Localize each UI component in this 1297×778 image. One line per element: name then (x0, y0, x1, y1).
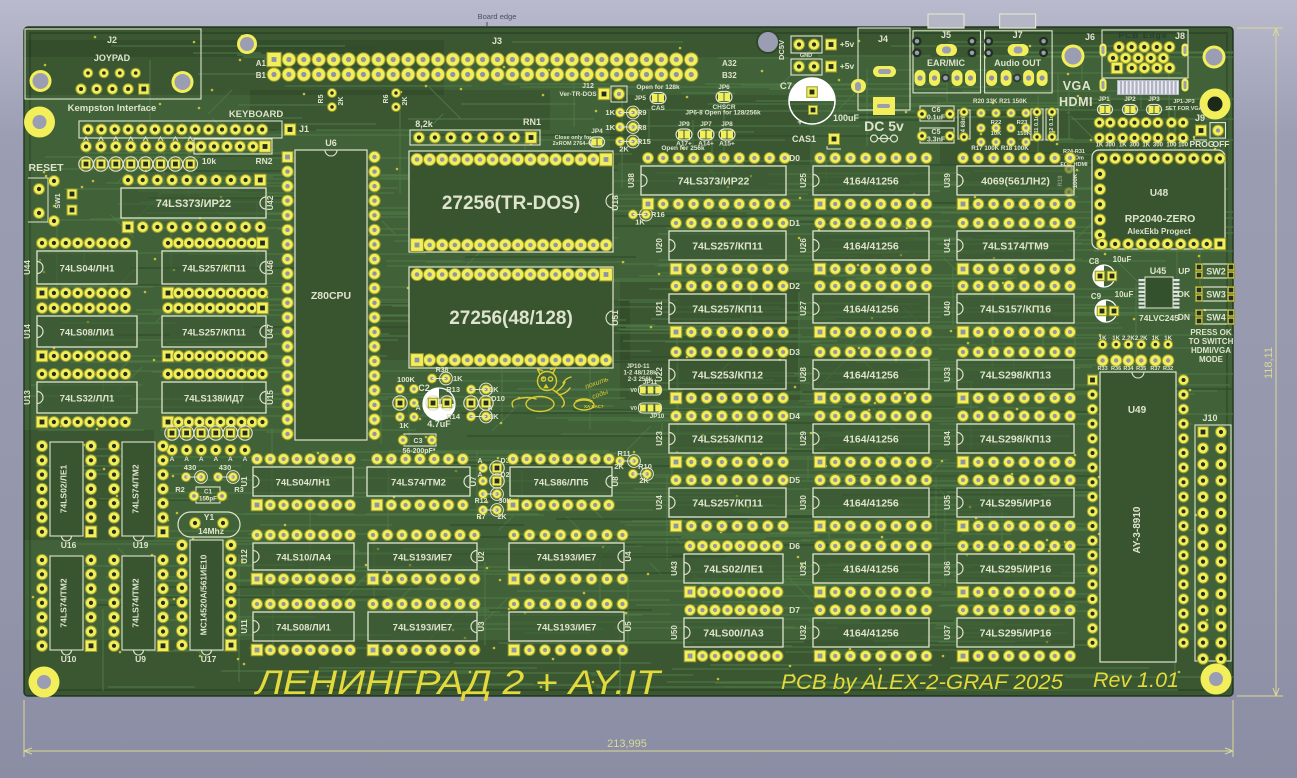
svg-text:+5v: +5v (840, 61, 855, 71)
svg-text:74LS373/ИР22: 74LS373/ИР22 (678, 176, 750, 188)
svg-text:4164/41256: 4164/41256 (843, 241, 899, 253)
svg-text:74LS08/ЛИ1: 74LS08/ЛИ1 (60, 328, 115, 339)
svg-text:74LS74/ТМ2: 74LS74/ТМ2 (131, 464, 141, 513)
svg-text:2K: 2K (614, 462, 624, 471)
svg-text:74LS193/ИЕ7: 74LS193/ИЕ7 (393, 553, 453, 564)
svg-text:U6: U6 (325, 138, 337, 148)
svg-text:C7: C7 (780, 81, 792, 92)
svg-text:DC5V: DC5V (777, 40, 786, 60)
svg-text:R16: R16 (651, 210, 665, 219)
svg-text:J10: J10 (1202, 413, 1217, 423)
svg-text:R33: R33 (1098, 366, 1108, 372)
svg-text:PROG: PROG (1189, 139, 1214, 149)
svg-text:4164/41256: 4164/41256 (843, 304, 899, 316)
svg-text:10uF: 10uF (1113, 255, 1132, 264)
svg-text:118,11: 118,11 (1263, 347, 1275, 379)
svg-text:74LS295/ИР16: 74LS295/ИР16 (980, 628, 1052, 640)
svg-text:SET FOR VGA: SET FOR VGA (1165, 106, 1202, 112)
svg-text:R23: R23 (1017, 120, 1028, 126)
svg-text:74LS32/ЛЛ1: 74LS32/ЛЛ1 (60, 394, 115, 405)
svg-text:2K: 2K (402, 97, 409, 106)
svg-text:UP: UP (1178, 266, 1190, 276)
svg-text:74LS373/ИР22: 74LS373/ИР22 (156, 198, 231, 210)
svg-text:1K: 1K (1119, 143, 1127, 149)
svg-text:C3: C3 (414, 438, 423, 445)
svg-text:74LVC245: 74LVC245 (1139, 313, 1179, 323)
svg-text:74LS257/КП11: 74LS257/КП11 (182, 264, 247, 275)
svg-text:0.1uF: 0.1uF (927, 115, 946, 122)
svg-text:1K: 1K (399, 421, 409, 430)
svg-text:U8: U8 (611, 476, 620, 487)
svg-text:U42: U42 (266, 195, 275, 210)
svg-text:74LS138/ИД7: 74LS138/ИД7 (184, 394, 244, 405)
svg-text:J6: J6 (1085, 32, 1095, 42)
svg-text:4164/41256: 4164/41256 (843, 434, 899, 446)
svg-text:U38: U38 (627, 173, 636, 188)
svg-text:JP6-8 Open for 128/256k: JP6-8 Open for 128/256k (685, 110, 761, 117)
svg-text:R36: R36 (1111, 366, 1121, 372)
svg-text:U37: U37 (943, 625, 952, 640)
svg-text:JP7: JP7 (700, 121, 712, 128)
svg-text:300: 300 (1105, 143, 1116, 149)
svg-text:D5: D5 (789, 475, 800, 485)
svg-text:EAR/MIC: EAR/MIC (927, 58, 966, 68)
svg-text:27256(TR-DOS): 27256(TR-DOS) (442, 193, 580, 214)
svg-text:B32: B32 (722, 71, 737, 80)
svg-text:150pF: 150pF (199, 496, 217, 503)
svg-text:U9: U9 (135, 654, 146, 664)
svg-text:300: 300 (1129, 143, 1140, 149)
svg-text:R6: R6 (383, 94, 390, 103)
svg-text:U21: U21 (655, 301, 664, 316)
svg-text:ХА ВАС?: ХА ВАС? (584, 404, 604, 409)
svg-text:J3: J3 (492, 36, 502, 46)
svg-text:300: 300 (1153, 143, 1164, 149)
svg-text:SW4: SW4 (1206, 313, 1226, 323)
svg-text:CAS1: CAS1 (792, 134, 816, 144)
svg-text:Kempston Interface: Kempston Interface (68, 103, 157, 114)
svg-text:14Mhz: 14Mhz (198, 526, 224, 536)
svg-text:74LS257/КП11: 74LS257/КП11 (182, 328, 247, 339)
svg-text:MODE: MODE (1199, 355, 1224, 364)
svg-text:U5: U5 (624, 621, 633, 632)
svg-text:TO SWITCH: TO SWITCH (1189, 337, 1234, 346)
svg-text:C1: C1 (204, 489, 212, 496)
svg-text:U29: U29 (799, 431, 808, 446)
svg-text:A: A (415, 405, 420, 412)
svg-text:74LS193/ИЕ7: 74LS193/ИЕ7 (393, 623, 453, 634)
svg-text:B1: B1 (256, 71, 267, 80)
svg-text:HDMI: HDMI (1059, 95, 1093, 109)
svg-text:Rev 1.01: Rev 1.01 (1093, 669, 1179, 692)
svg-text:U14: U14 (23, 324, 32, 339)
svg-text:27256(48/128): 27256(48/128) (449, 308, 573, 329)
svg-text:U35: U35 (943, 495, 952, 510)
svg-text:JP4: JP4 (591, 128, 603, 135)
svg-text:Open for 128k: Open for 128k (636, 84, 680, 91)
svg-text:JP10: JP10 (650, 413, 665, 420)
svg-text:R14: R14 (446, 412, 461, 421)
svg-text:2K: 2K (619, 145, 629, 154)
svg-text:8,2k: 8,2k (415, 119, 434, 129)
svg-text:74LS295/ИР16: 74LS295/ИР16 (980, 564, 1052, 576)
svg-text:U46: U46 (266, 260, 275, 275)
svg-text:A: A (199, 456, 204, 463)
svg-text:R37: R37 (1150, 366, 1160, 372)
svg-text:R15: R15 (637, 137, 651, 146)
svg-text:J1: J1 (299, 124, 309, 134)
svg-text:U17: U17 (201, 654, 217, 664)
svg-text:U34: U34 (943, 431, 952, 446)
svg-text:74LS257/КП11: 74LS257/КП11 (692, 241, 763, 253)
svg-text:74LS157/КП16: 74LS157/КП16 (980, 304, 1051, 316)
svg-text:430: 430 (184, 463, 197, 472)
svg-text:JP1: JP1 (1098, 96, 1110, 103)
svg-text:U50: U50 (670, 625, 679, 640)
svg-text:3.3nF: 3.3nF (927, 137, 946, 144)
svg-text:U15: U15 (266, 390, 275, 405)
svg-text:U44: U44 (23, 260, 32, 275)
svg-text:74LS86/ЛП5: 74LS86/ЛП5 (534, 478, 589, 489)
svg-text:74LS193/ИЕ7: 74LS193/ИЕ7 (537, 553, 597, 564)
svg-text:J2: J2 (107, 35, 117, 45)
svg-text:100: 100 (1166, 143, 1177, 149)
svg-text:U1: U1 (240, 476, 249, 487)
svg-text:KEYBOARD: KEYBOARD (229, 109, 284, 120)
svg-text:10uF: 10uF (1115, 290, 1134, 299)
svg-text:HDMI/VGA: HDMI/VGA (1191, 346, 1231, 355)
svg-text:C5: C5 (932, 129, 941, 136)
svg-text:R34: R34 (1123, 366, 1134, 372)
svg-text:CAS: CAS (651, 105, 665, 112)
svg-text:U2: U2 (477, 551, 486, 562)
svg-text:74LS253/КП12: 74LS253/КП12 (692, 434, 763, 446)
svg-text:U40: U40 (943, 301, 952, 316)
svg-text:74LS298/КП13: 74LS298/КП13 (980, 434, 1051, 446)
svg-text:74LS02/ЛЕ1: 74LS02/ЛЕ1 (704, 564, 764, 576)
svg-text:OK: OK (1177, 289, 1191, 299)
svg-text:D1: D1 (789, 218, 800, 228)
svg-text:R7: R7 (477, 514, 486, 521)
svg-text:A: A (228, 456, 233, 463)
svg-text:GND: GND (800, 53, 812, 59)
svg-text:D4: D4 (789, 411, 800, 421)
svg-text:V0: V0 (630, 406, 637, 412)
svg-text:U48: U48 (1150, 188, 1169, 199)
svg-text:U31: U31 (799, 561, 808, 576)
svg-text:2xROM 2764-4k: 2xROM 2764-4k (553, 141, 595, 147)
svg-text:1K: 1K (1096, 143, 1104, 149)
svg-text:PCB Edge: PCB Edge (1118, 30, 1167, 40)
svg-text:1K: 1K (489, 385, 499, 394)
svg-text:74LS295/ИР16: 74LS295/ИР16 (980, 498, 1052, 510)
svg-text:R13: R13 (446, 385, 460, 394)
svg-text:U45: U45 (1150, 266, 1167, 276)
svg-text:Audio OUT: Audio OUT (994, 58, 1041, 68)
svg-text:A: A (213, 456, 218, 463)
svg-text:74LS74/ТМ2: 74LS74/ТМ2 (391, 478, 446, 489)
svg-text:R8: R8 (637, 123, 647, 132)
svg-text:R22: R22 (991, 120, 1002, 126)
svg-text:74LS74/ТМ2: 74LS74/ТМ2 (131, 578, 141, 627)
svg-text:213,995: 213,995 (607, 738, 647, 750)
svg-text:1K: 1K (635, 218, 645, 227)
svg-text:R9: R9 (637, 108, 647, 117)
svg-text:U25: U25 (799, 173, 808, 188)
svg-text:R2: R2 (175, 485, 185, 494)
svg-text:74LS193/ИЕ7: 74LS193/ИЕ7 (537, 623, 597, 634)
svg-text:74LS257/КП11: 74LS257/КП11 (692, 498, 763, 510)
svg-text:74LS74/ТМ2: 74LS74/ТМ2 (59, 578, 69, 627)
svg-text:74LS253/КП12: 74LS253/КП12 (692, 370, 763, 382)
svg-text:J7: J7 (1013, 30, 1023, 40)
svg-text:RN1: RN1 (523, 117, 541, 127)
svg-text:Y1: Y1 (204, 512, 215, 522)
svg-text:D6: D6 (789, 541, 800, 551)
svg-text:U49: U49 (1128, 405, 1147, 416)
svg-text:Z80CPU: Z80CPU (311, 290, 351, 302)
svg-text:AlexEkb Progect: AlexEkb Progect (1127, 227, 1191, 236)
svg-text:J9: J9 (1195, 113, 1205, 123)
svg-text:V0: V0 (630, 388, 637, 394)
svg-text:U32: U32 (799, 625, 808, 640)
svg-text:1K: 1K (453, 374, 463, 383)
svg-text:U4: U4 (624, 551, 633, 562)
svg-text:74LS298/КП13: 74LS298/КП13 (980, 370, 1051, 382)
svg-text:10k: 10k (202, 156, 216, 166)
svg-text:A1: A1 (256, 59, 267, 68)
svg-text:ЛЕНИНГРАД 2 + AY.IT: ЛЕНИНГРАД 2 + AY.IT (254, 664, 663, 702)
svg-text:D3: D3 (789, 347, 800, 357)
svg-text:U28: U28 (799, 367, 808, 382)
svg-text:C6: C6 (932, 107, 941, 114)
svg-text:4164/41256: 4164/41256 (843, 564, 899, 576)
svg-text:U39: U39 (943, 173, 952, 188)
svg-text:C8: C8 (1089, 257, 1100, 266)
svg-text:U43: U43 (670, 561, 679, 576)
svg-text:4164/41256: 4164/41256 (843, 498, 899, 510)
svg-text:2K: 2K (338, 97, 345, 106)
svg-text:U36: U36 (943, 561, 952, 576)
svg-text:U20: U20 (655, 238, 664, 253)
svg-text:D7: D7 (789, 605, 800, 615)
svg-text:U10: U10 (61, 654, 77, 664)
svg-text:J4: J4 (878, 34, 888, 44)
svg-text:DN: DN (1178, 312, 1190, 322)
svg-text:U51: U51 (610, 310, 620, 326)
svg-text:1K: 1K (605, 108, 615, 117)
svg-text:U24: U24 (655, 495, 664, 510)
svg-text:AY-3-8910: AY-3-8910 (1132, 506, 1143, 553)
svg-text:RN2: RN2 (255, 156, 272, 166)
svg-text:74LS02/ЛЕ1: 74LS02/ЛЕ1 (59, 464, 69, 513)
svg-text:U18: U18 (610, 195, 620, 211)
svg-text:U26: U26 (799, 238, 808, 253)
svg-text:+: + (797, 117, 802, 127)
svg-text:U41: U41 (943, 238, 952, 253)
svg-text:DC 5v: DC 5v (864, 118, 904, 134)
svg-text:R32: R32 (1163, 366, 1173, 372)
svg-text:U12: U12 (240, 549, 249, 564)
svg-text:4069(561ЛН2): 4069(561ЛН2) (981, 176, 1050, 188)
svg-text:A15+: A15+ (719, 141, 735, 148)
svg-text:C9: C9 (1091, 292, 1102, 301)
svg-text:U33: U33 (943, 367, 952, 382)
svg-text:A32: A32 (722, 59, 737, 68)
svg-text:2K: 2K (639, 476, 649, 485)
svg-text:A: A (170, 456, 175, 463)
svg-text:RP2040-ZERO: RP2040-ZERO (1125, 213, 1196, 225)
svg-text:U23: U23 (655, 431, 664, 446)
svg-text:R12: R12 (475, 498, 488, 505)
svg-text:JP1-JP3: JP1-JP3 (1173, 99, 1194, 105)
svg-text:SW3: SW3 (1206, 290, 1226, 300)
svg-text:J8: J8 (1175, 31, 1185, 41)
svg-text:U30: U30 (799, 495, 808, 510)
svg-text:1K: 1K (605, 123, 615, 132)
svg-text:4164/41256: 4164/41256 (843, 370, 899, 382)
svg-text:JP9: JP9 (678, 121, 690, 128)
svg-text:SW1: SW1 (55, 193, 62, 208)
svg-text:2K: 2K (498, 514, 507, 521)
svg-text:R17 100K R18 100K: R17 100K R18 100K (971, 145, 1029, 152)
svg-text:U19: U19 (133, 540, 149, 550)
svg-text:74LS04/ЛН1: 74LS04/ЛН1 (60, 264, 115, 275)
svg-text:D2: D2 (789, 281, 800, 291)
svg-text:U11: U11 (240, 619, 249, 634)
svg-text:Ver-TR-DOS: Ver-TR-DOS (559, 91, 597, 98)
svg-text:U27: U27 (799, 301, 808, 316)
svg-text:74LS04/ЛН1: 74LS04/ЛН1 (276, 478, 331, 489)
svg-text:J12: J12 (582, 83, 594, 90)
svg-text:JP2: JP2 (1124, 96, 1136, 103)
svg-text:4164/41256: 4164/41256 (843, 628, 899, 640)
svg-text:JP6: JP6 (718, 84, 730, 91)
svg-text:74LS10/ЛА4: 74LS10/ЛА4 (276, 553, 331, 564)
svg-text:150K: 150K (1017, 131, 1032, 137)
svg-text:D2: D2 (501, 472, 510, 479)
svg-text:PCB by ALEX-2-GRAF 2025: PCB by ALEX-2-GRAF 2025 (781, 671, 1063, 694)
svg-text:74LS174/ТМ9: 74LS174/ТМ9 (982, 241, 1049, 253)
svg-text:R20 33K R21 150K: R20 33K R21 150K (973, 98, 1028, 105)
svg-text:D0: D0 (789, 153, 800, 163)
svg-text:Open for 256k: Open for 256k (661, 145, 705, 152)
svg-text:Board edge: Board edge (478, 12, 517, 21)
svg-text:30K: 30K (499, 498, 512, 505)
svg-text:SW2: SW2 (1206, 267, 1226, 277)
svg-text:VGA: VGA (1063, 79, 1092, 93)
svg-text:100: 100 (1178, 143, 1189, 149)
svg-text:JP8: JP8 (721, 121, 733, 128)
svg-text:100K: 100K (397, 375, 416, 384)
svg-text:10K: 10K (991, 131, 1002, 137)
svg-text:A: A (243, 456, 248, 463)
svg-text:U13: U13 (23, 390, 32, 405)
svg-text:OFF: OFF (1213, 139, 1230, 149)
svg-text:RESET: RESET (28, 162, 64, 174)
svg-text:MC14520A/561ИЕ10: MC14520A/561ИЕ10 (199, 554, 209, 635)
svg-text:1K: 1K (1142, 143, 1150, 149)
svg-text:U16: U16 (61, 540, 77, 550)
svg-text:+5v: +5v (840, 39, 855, 49)
svg-text:74LS00/ЛА3: 74LS00/ЛА3 (703, 628, 764, 640)
svg-text:JP3: JP3 (1148, 96, 1160, 103)
svg-text:U47: U47 (266, 324, 275, 339)
svg-text:PRESS OK: PRESS OK (1190, 328, 1232, 337)
svg-text:1K: 1K (489, 412, 499, 421)
svg-text:74LS08/ЛИ1: 74LS08/ЛИ1 (276, 623, 331, 634)
svg-text:R5: R5 (318, 94, 325, 103)
svg-text:430: 430 (219, 463, 232, 472)
svg-text:JP5: JP5 (634, 95, 646, 102)
svg-text:4164/41256: 4164/41256 (843, 176, 899, 188)
svg-text:JOYPAD: JOYPAD (94, 53, 131, 63)
svg-text:100uF: 100uF (833, 113, 860, 123)
svg-text:A: A (184, 456, 189, 463)
svg-text:J5: J5 (941, 30, 951, 40)
svg-text:U3: U3 (477, 621, 486, 632)
svg-text:R35: R35 (1136, 366, 1146, 372)
svg-text:74LS257/КП11: 74LS257/КП11 (692, 304, 763, 316)
